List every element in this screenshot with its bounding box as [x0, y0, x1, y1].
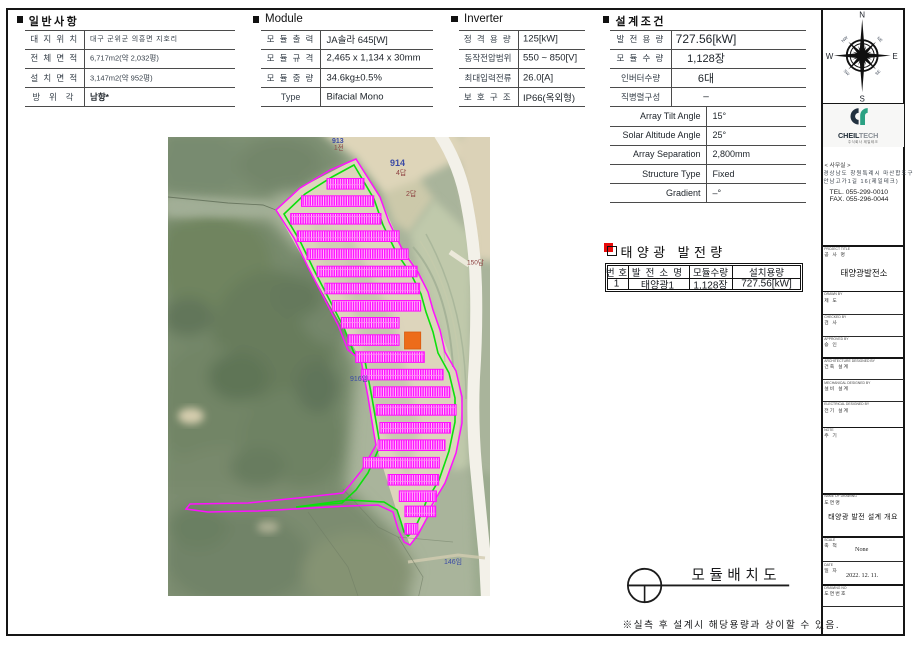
- svg-text:N: N: [860, 10, 866, 19]
- svg-text:NE: NE: [876, 35, 884, 43]
- svg-text:916임: 916임: [350, 375, 368, 383]
- svg-text:NW: NW: [841, 35, 850, 44]
- svg-text:SW: SW: [843, 68, 851, 76]
- svg-text:S: S: [860, 94, 865, 103]
- svg-text:4답: 4답: [396, 168, 407, 177]
- svg-text:W: W: [826, 52, 834, 61]
- svg-text:2답: 2답: [406, 189, 417, 198]
- svg-text:1전: 1전: [334, 143, 344, 152]
- svg-text:914: 914: [390, 158, 405, 168]
- svg-text:SE: SE: [874, 68, 882, 76]
- svg-text:146임: 146임: [444, 558, 462, 566]
- svg-text:150답: 150답: [467, 259, 484, 267]
- svg-text:E: E: [893, 52, 898, 61]
